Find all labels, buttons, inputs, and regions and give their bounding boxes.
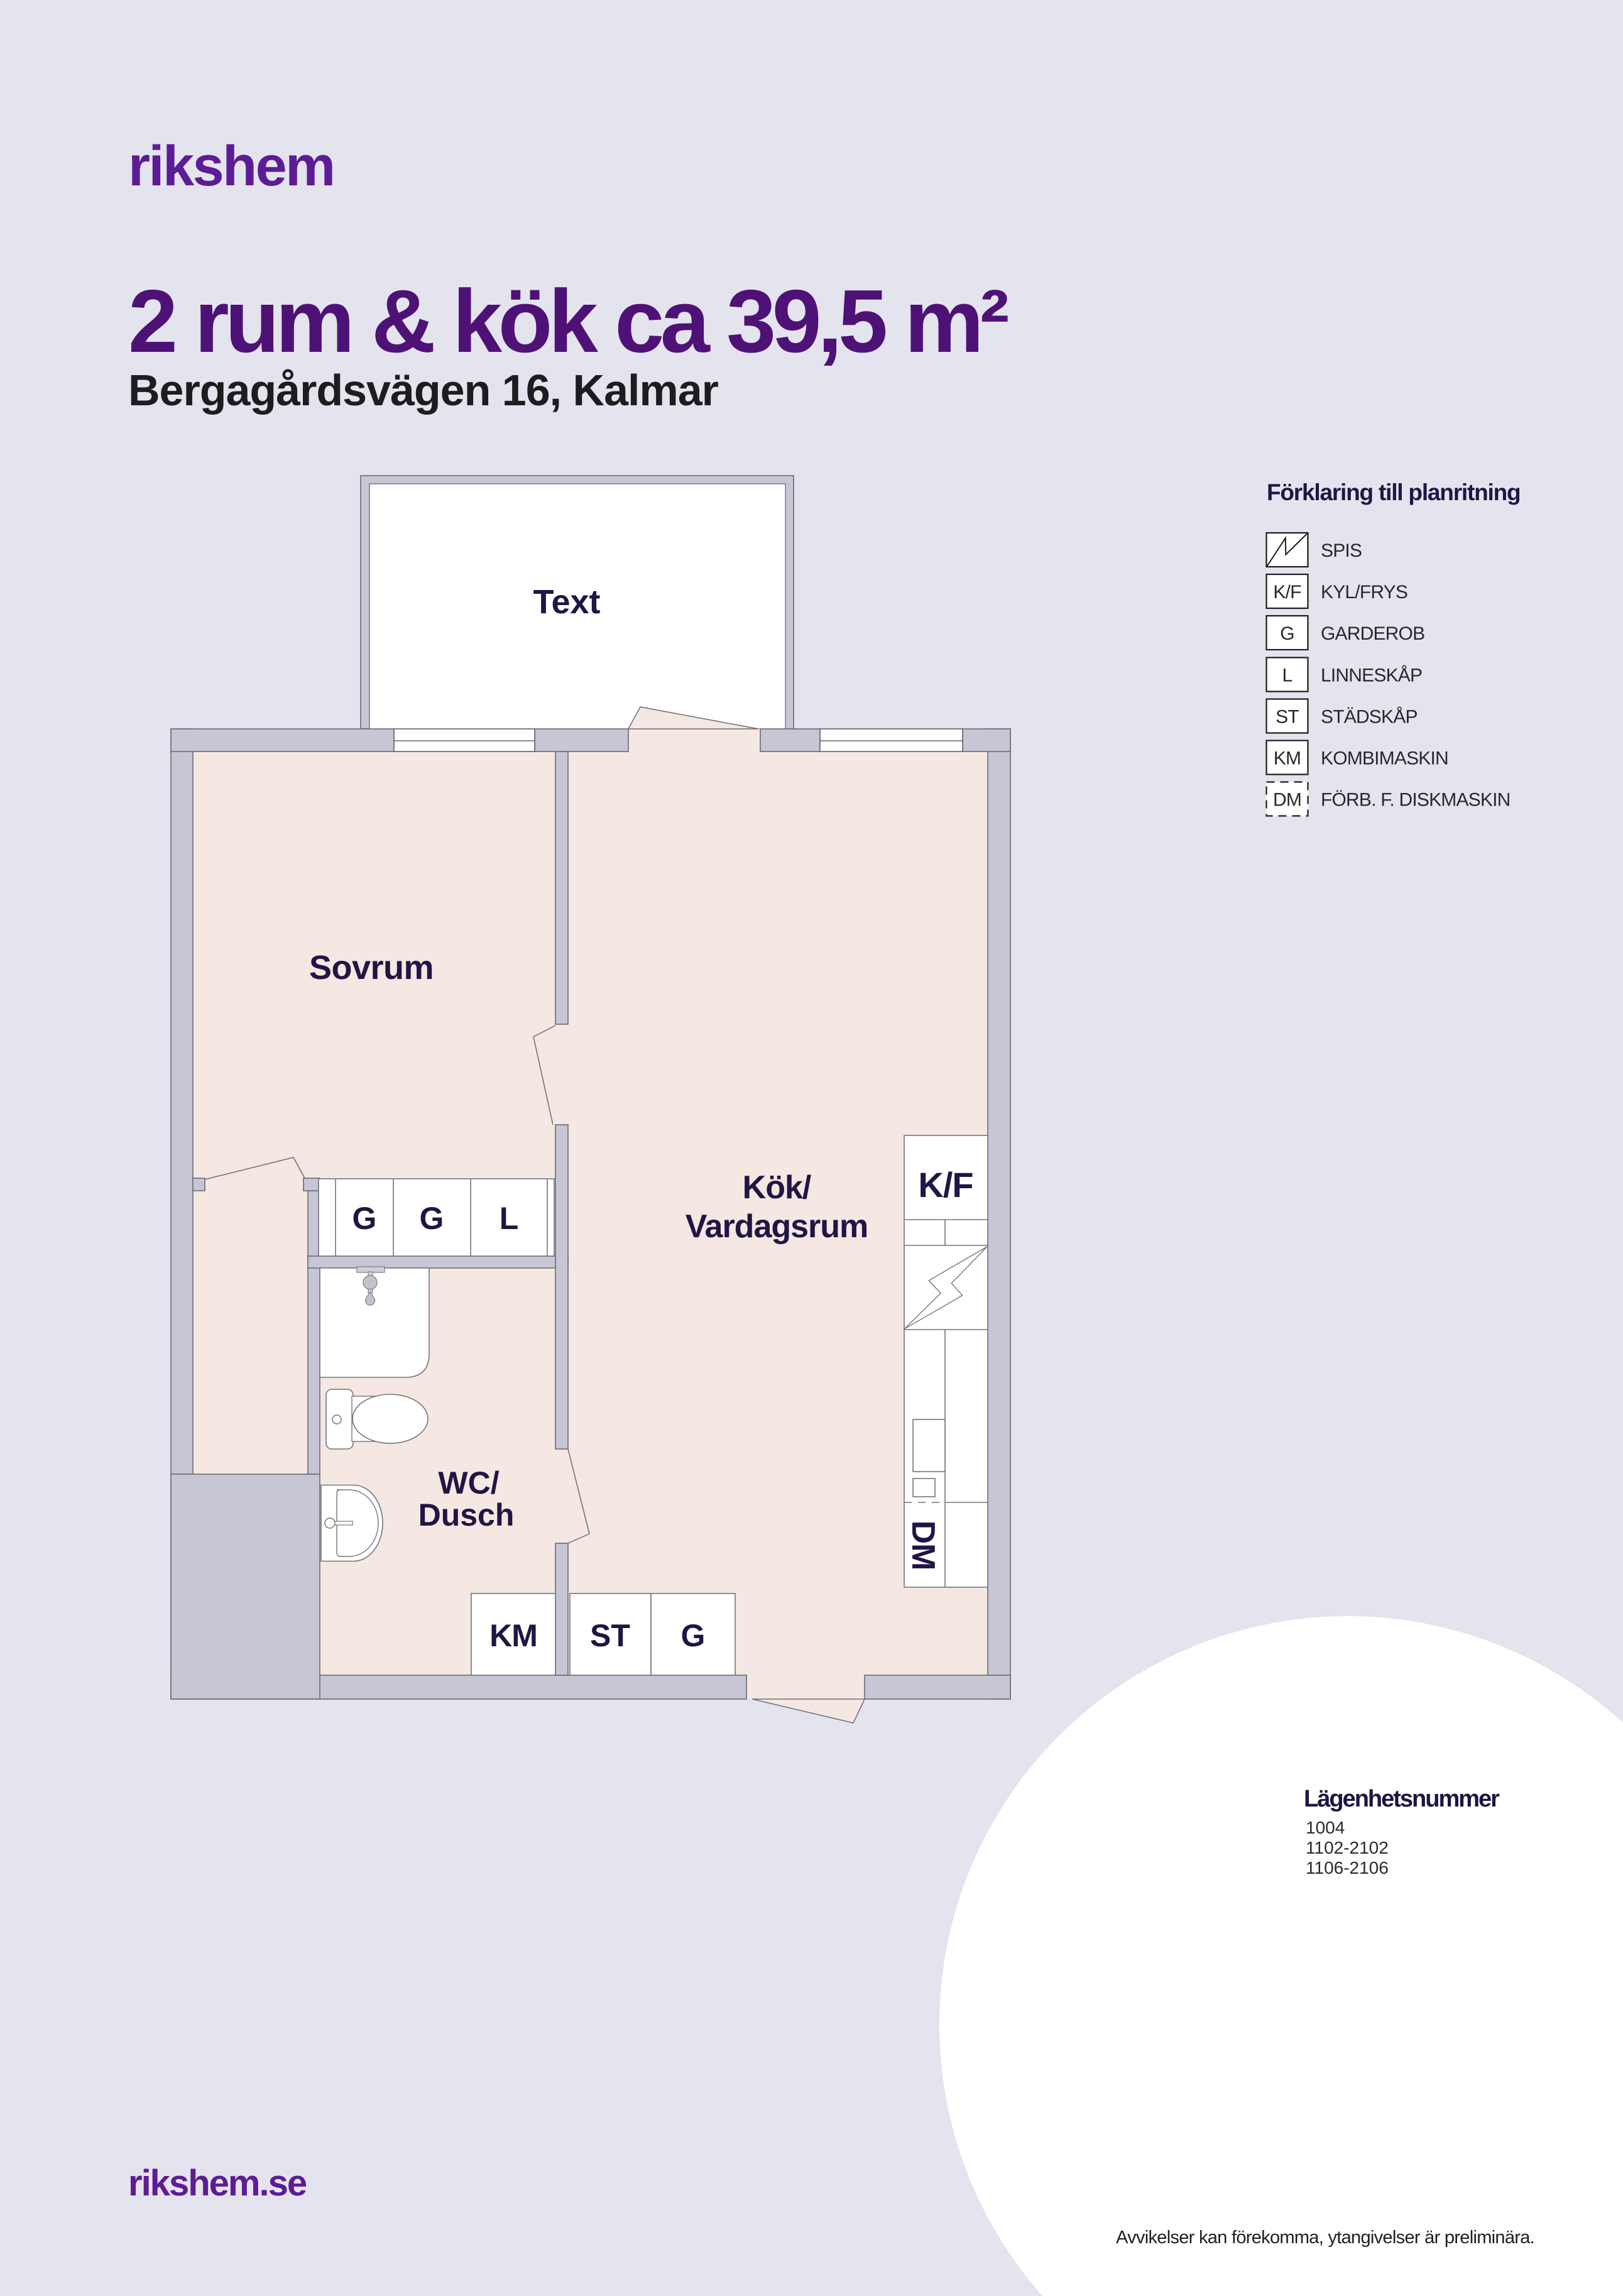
svg-text:ST: ST — [1276, 707, 1299, 728]
svg-text:Dusch: Dusch — [418, 1497, 515, 1533]
svg-text:STÄDSKÅP: STÄDSKÅP — [1321, 707, 1418, 728]
svg-text:K/F: K/F — [918, 1165, 973, 1205]
svg-text:SPIS: SPIS — [1321, 540, 1362, 561]
svg-text:G: G — [681, 1618, 706, 1653]
svg-text:KOMBIMASKIN: KOMBIMASKIN — [1321, 748, 1448, 769]
svg-text:Sovrum: Sovrum — [309, 949, 434, 987]
svg-text:L: L — [500, 1201, 519, 1236]
svg-text:LINNESKÅP: LINNESKÅP — [1321, 665, 1422, 686]
svg-text:rikshem.se: rikshem.se — [128, 2163, 307, 2204]
svg-text:K/F: K/F — [1273, 582, 1301, 603]
svg-text:rikshem: rikshem — [128, 135, 334, 198]
svg-text:DM: DM — [1273, 790, 1301, 811]
svg-text:1102-2102: 1102-2102 — [1306, 1838, 1389, 1857]
svg-text:ST: ST — [590, 1618, 630, 1653]
svg-text:Text: Text — [533, 583, 600, 621]
svg-text:L: L — [1282, 665, 1292, 686]
svg-text:G: G — [420, 1201, 444, 1236]
svg-text:Bergagårdsvägen 16, Kalmar: Bergagårdsvägen 16, Kalmar — [128, 366, 719, 415]
svg-text:Avvikelser kan förekomma, ytan: Avvikelser kan förekomma, ytangivelser ä… — [1116, 2228, 1534, 2248]
svg-text:GARDEROB: GARDEROB — [1321, 623, 1424, 644]
svg-text:Vardagsrum: Vardagsrum — [686, 1208, 868, 1245]
svg-text:KM: KM — [489, 1618, 537, 1653]
svg-text:FÖRB. F. DISKMASKIN: FÖRB. F. DISKMASKIN — [1321, 790, 1511, 811]
svg-text:1106-2106: 1106-2106 — [1306, 1858, 1389, 1878]
svg-text:1004: 1004 — [1306, 1818, 1345, 1837]
svg-text:WC/: WC/ — [438, 1465, 499, 1501]
svg-text:KM: KM — [1274, 748, 1301, 769]
svg-text:G: G — [352, 1201, 377, 1236]
svg-text:KYL/FRYS: KYL/FRYS — [1321, 582, 1407, 603]
svg-text:Kök/: Kök/ — [743, 1169, 811, 1206]
svg-text:G: G — [1280, 623, 1294, 644]
svg-text:DM: DM — [905, 1521, 941, 1570]
svg-text:Lägenhetsnummer: Lägenhetsnummer — [1304, 1786, 1500, 1812]
svg-text:Förklaring till planritning: Förklaring till planritning — [1267, 479, 1520, 505]
svg-text:2 rum & kök ca 39,5 m²: 2 rum & kök ca 39,5 m² — [128, 271, 1008, 371]
